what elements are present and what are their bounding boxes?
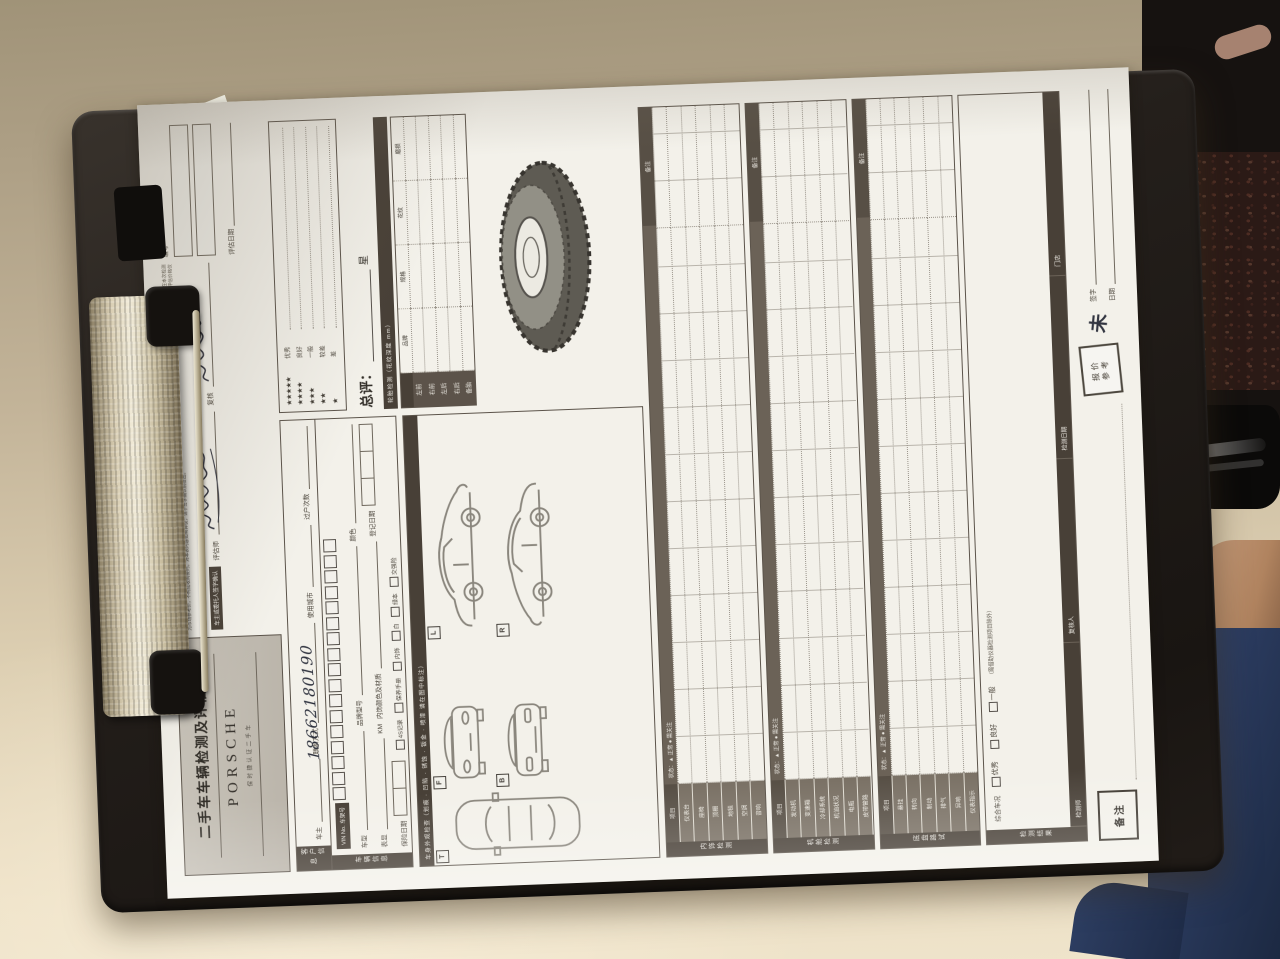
form-main: 客户信息 车主 联系方式 使用城市 过户次数 18662180190 车辆信息 (268, 107, 661, 871)
footer-cell: 复核人 (1056, 459, 1079, 643)
checkbox-icon (394, 703, 404, 713)
stamp-line2: 参考 (1100, 358, 1112, 381)
condition-checkbox: 一般 (987, 686, 998, 712)
vin-checkbox (327, 632, 340, 645)
reg-date-label: 登记日期 (366, 510, 377, 536)
exterior-section: 车身外观检查（划痕 · 凹陷 · 锈蚀 · 钣金 · 喷漆 请在图中标注） T (402, 406, 660, 867)
interior-label: 内饰颜色及材质 (372, 673, 384, 719)
number-field (169, 124, 193, 257)
grade-label: 良好 (294, 334, 304, 358)
date-label: 日期 (1106, 288, 1116, 301)
owner-confirm-label: 车主或委托人签字确认 (209, 566, 223, 629)
stars: ★ (330, 362, 340, 404)
paper-sheet: 二手车车辆检测及评估表 PORSCHE 保时捷认证二手车 本检测评估表所载内容仅… (137, 67, 1159, 898)
vin-checkbox (329, 694, 342, 707)
insurance-date-boxes (391, 761, 407, 816)
review-label: 复核 (204, 392, 214, 405)
number-block: 编号 评估日期 (156, 122, 267, 258)
overall-label: 总评： (354, 367, 376, 408)
record-checkbox: 绿本 (390, 593, 400, 616)
vehicle-fields: VIN No. 车架号 车型 品牌型号 颜色 表显 KM (315, 417, 412, 856)
vin-checkbox (324, 555, 337, 568)
vin-checkbox (330, 725, 343, 738)
grade-label: 差 (328, 333, 338, 357)
tag-left: L (427, 626, 440, 639)
remark-dotted-area (1093, 404, 1136, 781)
photo-scene: 二手车车辆检测及评估表 PORSCHE 保时捷认证二手车 本检测评估表所载内容仅… (0, 0, 1280, 959)
tag-front: F (433, 776, 446, 789)
overall-unit: 星 (355, 255, 370, 266)
item-label: 仪表指示 (963, 773, 980, 832)
record-checkbox: 交强险 (388, 557, 399, 586)
vin-checkbox (324, 570, 337, 583)
tire-position-label: 备胎 (462, 371, 476, 405)
city-line (310, 525, 313, 588)
condition-label: 综合车况 (992, 796, 1003, 822)
inspection-sections: 内饰检测 项目 状态：▲ 正常 ● 需关注 备注 仪表台座椅顶棚地毯空调音响 机… (638, 91, 1089, 858)
remark-box: 备注 (1097, 789, 1139, 840)
car-col-front-rear: F (434, 693, 650, 785)
stars: ★★★ (307, 363, 317, 405)
inspection-form: 二手车车辆检测及评估表 PORSCHE 保时捷认证二手车 本检测评估表所载内容仅… (145, 77, 1149, 889)
checkbox-icon (390, 607, 400, 617)
owner-label: 车主 (313, 827, 323, 840)
stars: ★★★★ (295, 363, 305, 405)
color-line (352, 424, 357, 523)
footer-cell: 门店 (1042, 92, 1065, 276)
left-column: 客户信息 车主 联系方式 使用城市 过户次数 18662180190 车辆信息 (279, 406, 660, 872)
checkbox-icon (389, 577, 399, 587)
vin-checkbox (328, 663, 341, 676)
car-front-view-diagram: F (434, 699, 494, 785)
item-label: 音响 (750, 781, 767, 840)
car-col-top: T (438, 785, 653, 859)
car-top-view-diagram: T (438, 787, 603, 859)
assess-date-label: 评估日期 (225, 229, 236, 255)
vin-checkbox (323, 539, 336, 552)
checkbox-icon (395, 740, 405, 750)
clip-clamp-bottom (149, 649, 205, 715)
tire-illustration (474, 109, 613, 406)
vin-checkbox (332, 787, 345, 800)
tire-table: 品牌规格花纹磨损 左前右前左后右后备胎 (389, 114, 477, 409)
record-checkbox: 4S记录 (394, 719, 405, 750)
transfer-label: 过户次数 (300, 494, 311, 520)
number-field (192, 124, 216, 257)
odometer-line (384, 739, 388, 830)
assessor-label: 评估师 (210, 541, 221, 561)
record-checkbox: 保养手册 (393, 678, 404, 713)
vin-checkbox (332, 771, 345, 784)
clip-mount (113, 184, 166, 261)
car-side-right-diagram: R (495, 474, 564, 632)
vin-checkbox (325, 586, 338, 599)
insurance-label: 保险日期 (398, 820, 409, 846)
vin-checkbox (329, 709, 342, 722)
divider (255, 652, 264, 856)
car-rear-view-diagram: B (497, 697, 557, 783)
footer-cell: 检测师 (1063, 643, 1086, 827)
stars: ★★ (318, 362, 328, 404)
odometer-unit: KM (377, 724, 384, 734)
jeans-leg-lower (1069, 878, 1188, 959)
vin-checkbox (326, 617, 339, 630)
vin-label: VIN No. 车架号 (335, 803, 351, 849)
reg-date-boxes (359, 424, 376, 506)
owner-line (319, 759, 322, 822)
footer-cell: 检测日期 (1049, 276, 1072, 460)
vin-checkbox (328, 678, 341, 691)
stars: ★★★★★ (284, 364, 294, 406)
record-checkbox: 内饰 (392, 648, 402, 671)
car-col-sides: L (423, 413, 646, 693)
record-checkboxes: 4S记录保养手册内饰白绿本交强险 (388, 557, 405, 750)
model-line (363, 731, 368, 830)
condition-checkbox: 良好 (989, 724, 1000, 750)
overall-rating: 总评： 星 (344, 120, 375, 409)
condition-checkboxes: 优秀良好一般 (987, 686, 1001, 787)
customer-band: 客户信息 (297, 845, 332, 870)
brand-model-line (356, 546, 363, 695)
vin-checkbox (327, 648, 340, 661)
condition-note: （需借助仪器检测项目除外） (985, 607, 996, 677)
odometer-label: 表显 (378, 834, 388, 847)
right-column: ★★★★★优秀★★★★良好★★★一般★★较差★差 总评： 星 轮胎检测（花纹深度… (268, 107, 643, 413)
color-label: 颜色 (347, 528, 357, 541)
checkbox-icon (990, 740, 1000, 750)
bottom-sign-lines: 签字 日期 (1079, 89, 1118, 302)
car-side-left-diagram: L (426, 477, 495, 635)
assess-date-line (230, 123, 235, 226)
city-label: 使用城市 (304, 592, 315, 618)
star-rating-legend: ★★★★★优秀★★★★良好★★★一般★★较差★差 (268, 119, 347, 413)
vin-checkbox (325, 601, 338, 614)
handwritten-wei-mark: 未 (1083, 313, 1111, 334)
record-checkbox: 白 (391, 623, 401, 641)
quote-reference-stamp: 报价 参考 (1078, 343, 1123, 397)
tag-top: T (436, 850, 449, 863)
checkbox-icon (988, 702, 998, 712)
interior-line (376, 541, 382, 668)
checkbox-icon (391, 631, 401, 641)
vin-checkbox (331, 756, 344, 769)
grade-label: 优秀 (282, 335, 292, 359)
date-line (1107, 89, 1115, 284)
item-label: 皮带管路 (856, 777, 873, 836)
handwritten-phone: 18662180190 (297, 644, 324, 761)
sign-label: 签字 (1087, 289, 1097, 302)
grade-label: 一般 (305, 334, 315, 358)
checkbox-icon (991, 777, 1001, 787)
transfer-line (307, 426, 310, 489)
car-diagram-area: T (417, 407, 659, 865)
tag-rear: B (496, 774, 509, 787)
assess-date-row: 评估日期 (221, 123, 236, 255)
checkbox-icon (392, 661, 402, 671)
tire-rows: 左前右前左后右后备胎 (402, 115, 476, 407)
vehicle-info-block: 车辆信息 VIN No. 车架号 车型 品牌型号 颜色 (315, 416, 413, 871)
sign-line (1088, 90, 1096, 285)
model-label: 车型 (358, 835, 368, 848)
vin-checkbox (331, 740, 344, 753)
condition-checkbox: 优秀 (990, 761, 1001, 787)
brand-model-label: 品牌型号 (353, 700, 364, 726)
grade-label: 较差 (317, 333, 327, 357)
overall-blank (355, 270, 374, 363)
